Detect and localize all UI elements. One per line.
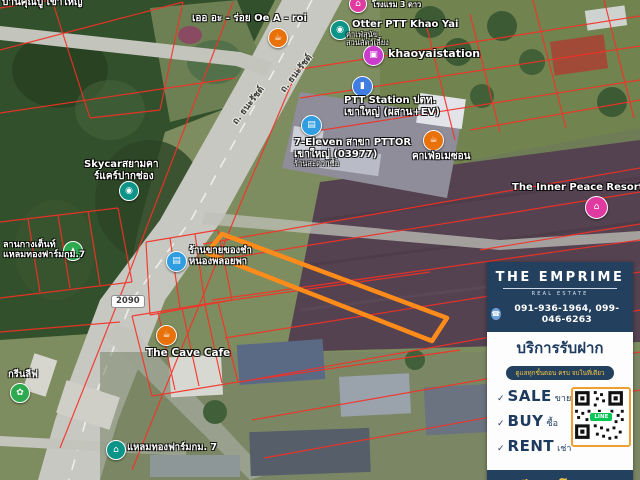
restaurant-icon[interactable]: ☕ <box>268 28 288 48</box>
poi-inner-peace[interactable]: The Inner Peace Resort <box>512 182 640 194</box>
grocery-icon[interactable]: ▤ <box>166 251 187 272</box>
poi-oe-a-roi[interactable]: เออ อะ - ร่อย Oe A - roi <box>192 13 307 25</box>
realtor-flyer-panel: THE EMPRIME REAL ESTATE ☎ 091-936-1964, … <box>487 262 633 480</box>
line-qr-code: LINE <box>571 387 631 447</box>
check-icon: ✓ <box>497 444 505 454</box>
camera-icon[interactable]: ▣ <box>363 45 384 66</box>
route-shield-2090: 2090 <box>111 295 145 308</box>
poi-grocery[interactable]: ร้านขายของชำ หนองพลอยพา <box>189 246 252 268</box>
brand-name: THE EMPRIME <box>491 270 629 285</box>
promo-line-1: ฟรี! ค่าโฆษณา <box>491 475 629 480</box>
phone-row: ☎ 091-936-1964, 099-046-6263 <box>491 303 629 325</box>
check-icon: ✓ <box>497 394 505 404</box>
service-item-sale: ✓ SALE ขาย <box>497 387 571 405</box>
service-items: ✓ SALE ขาย ✓ BUY ซื้อ ✓ RENT เช่า <box>493 387 571 462</box>
poi-camping[interactable]: ลานกางเต็นท์ แหลมทองฟาร์มกม.7 <box>3 240 85 261</box>
poi-hotel-3-star[interactable]: โรงแรม 3 ดาว <box>372 1 421 10</box>
poi-ptt-station[interactable]: PTT Station ปตท. เขาใหญ่ (ผสาน+EV) <box>344 95 440 118</box>
service-title: บริการรับฝาก <box>493 336 627 360</box>
poi-cafe-amazon[interactable]: คาเฟ่อเมซอน <box>412 151 470 163</box>
service-tagline: ดูแลทุกขั้นตอน ครบ จบในที่เดียว <box>506 366 613 380</box>
convenience-store-icon[interactable]: ▤ <box>301 115 322 136</box>
poi-khaoyaistation[interactable]: khaoyaistation <box>388 48 480 61</box>
farm-icon[interactable]: ⌂ <box>106 440 126 460</box>
car-care-icon[interactable]: ◉ <box>119 181 139 201</box>
poi-seven-eleven[interactable]: 7-Eleven สาขา PTTOR เขาใหญ่ (03977) ร้าน… <box>294 137 411 169</box>
service-item-rent: ✓ RENT เช่า <box>497 437 571 455</box>
poi-skycar[interactable]: Skycarสยามคา ร์แคร์ปากช่อง <box>84 159 158 182</box>
poi-cave-cafe[interactable]: The Cave Cafe <box>146 347 230 359</box>
resort-icon[interactable]: ⌂ <box>585 196 608 219</box>
promo-bar: ฟรี! ค่าโฆษณา จัดหาสินเชื่อให้ฟรี <box>487 470 633 480</box>
cafe-icon[interactable]: ☕ <box>423 130 444 151</box>
phone-icon: ☎ <box>491 308 501 320</box>
brand-header: THE EMPRIME REAL ESTATE ☎ 091-936-1964, … <box>487 262 633 332</box>
line-logo: LINE <box>589 412 613 422</box>
poi-otter-ptt[interactable]: Otter PTT Khao Yai คาเฟ่สุนัข สวนสัตว์เล… <box>352 19 458 48</box>
phone-numbers: 091-936-1964, 099-046-6263 <box>505 303 629 325</box>
brand-subtitle: REAL ESTATE <box>491 291 629 297</box>
listing-map-image: ☕ ⌂ ◉ ▣ ▮ ▤ ☕ ⌂ ◉ ▲ ▤ ✿ ☕ ⌂ บ้านคุณปู่ เ… <box>0 0 640 480</box>
cave-cafe-icon[interactable]: ☕ <box>156 325 177 346</box>
check-icon: ✓ <box>497 419 505 429</box>
brand-divider <box>503 288 616 289</box>
poi-laem-thong-farm[interactable]: แหลมทองฟาร์มกม. 7 <box>127 443 217 454</box>
service-item-buy: ✓ BUY ซื้อ <box>497 412 571 430</box>
gas-station-icon[interactable]: ▮ <box>352 76 373 97</box>
service-items-row: ✓ SALE ขาย ✓ BUY ซื้อ ✓ RENT เช่า <box>493 387 627 462</box>
poi-ban-khun-pu[interactable]: บ้านคุณปู่ เขาใหญ่ <box>2 0 82 9</box>
services-section: บริการรับฝาก ดูแลทุกขั้นตอน ครบ จบในที่เ… <box>487 332 633 470</box>
park-icon[interactable]: ✿ <box>10 383 30 403</box>
poi-green-leaf[interactable]: กรีนลีฟ <box>8 370 38 381</box>
